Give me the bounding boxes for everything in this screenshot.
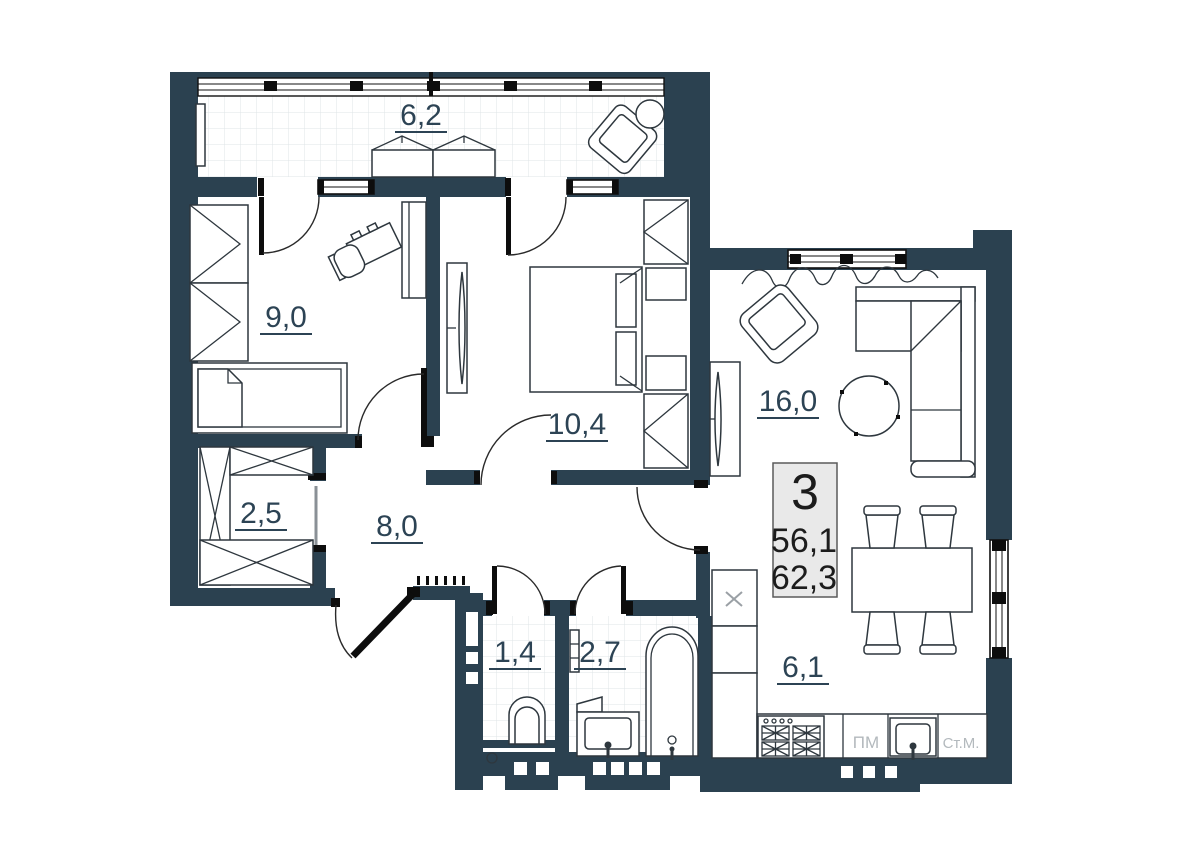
bathtub-icon: [646, 627, 698, 760]
dining-chair-icon: [920, 612, 956, 654]
nightstand-icon: [646, 268, 686, 300]
double-bed-icon: [530, 267, 642, 392]
desk-shelf-icon: [402, 202, 426, 298]
living-area: 56,1: [771, 522, 837, 560]
dining-table-icon: [852, 548, 972, 612]
kitchen-cabinet-icon: [712, 673, 757, 758]
radiator-icon: [570, 630, 579, 672]
area-label-bedroom-small: 9,0: [265, 301, 307, 334]
area-label-wc: 1,4: [494, 636, 536, 669]
total-area: 62,3: [771, 559, 837, 597]
rooms-count: 3: [791, 464, 819, 520]
window-kitchen-right: [990, 540, 1008, 658]
radiator-icon: [196, 104, 205, 166]
washing-machine-label: Ст.М.: [943, 735, 980, 752]
coffee-table-icon: [839, 376, 900, 436]
kitchen-cabinet-icon: [712, 626, 757, 673]
stove-icon: [758, 716, 824, 758]
toilet-icon: [509, 697, 545, 744]
wardrobe-icon: [190, 205, 248, 361]
nightstand-icon: [646, 356, 686, 390]
area-label-hallway: 8,0: [376, 510, 418, 543]
tv-stand-icon: [710, 362, 740, 476]
single-bed-icon: [192, 363, 347, 433]
tv-unit-icon: [447, 263, 467, 393]
dining-chair-icon: [864, 612, 900, 654]
floor-plan-drawing: ПМ Ст.М.: [0, 0, 1200, 848]
dishwasher-label: ПМ: [853, 733, 879, 752]
area-label-kitchen: 6,1: [782, 651, 824, 684]
window-bedroom-master: [567, 180, 618, 194]
area-label-living-room: 16,0: [759, 385, 817, 418]
area-label-bedroom-master: 10,4: [548, 408, 606, 441]
balcony-table-icon: [636, 100, 664, 128]
dining-chair-icon: [864, 506, 900, 548]
window-bedroom-small: [318, 180, 374, 194]
area-label-storage: 2,5: [240, 497, 282, 530]
floor-plan: ПМ Ст.М.: [0, 0, 1200, 848]
fridge-icon: [712, 570, 757, 626]
dining-chair-icon: [920, 506, 956, 548]
kitchen-sink-icon: [890, 718, 936, 760]
area-label-bathroom: 2,7: [579, 636, 621, 669]
info-box: 3 56,1 62,3: [771, 463, 837, 597]
area-label-balcony: 6,2: [400, 99, 442, 132]
